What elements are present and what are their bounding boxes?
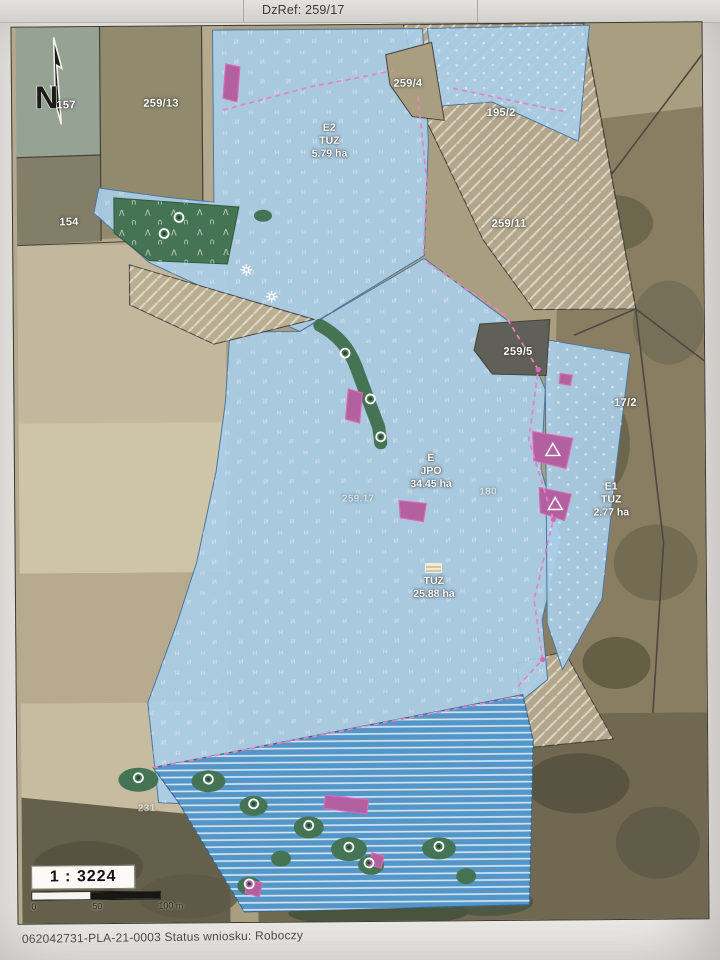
area-size: 5.79 ha <box>312 148 348 161</box>
map-canvas: н и Λ ∩ <box>10 21 709 924</box>
parcel-label-195-2: 195/2 <box>487 107 516 119</box>
header-divider <box>477 0 478 22</box>
parcel-label-259-5: 259/5 <box>503 346 532 358</box>
tuz-symbol-icon <box>425 563 442 573</box>
area-code: E1 <box>593 480 629 493</box>
scale-tick-0: 0 <box>31 902 36 912</box>
parcel-label-17-2: 17/2 <box>614 397 637 409</box>
header-divider <box>243 0 244 22</box>
area-size: 25.88 ha <box>413 588 455 601</box>
parcel-label-259-4: 259/4 <box>393 77 422 89</box>
parcel-label-154: 154 <box>59 216 78 228</box>
area-label-e2: E2 TUZ 5.79 ha <box>311 122 347 161</box>
scale-segment-black <box>90 892 160 900</box>
scale-bar-track <box>31 891 161 901</box>
area-code: E2 <box>311 122 347 135</box>
area-size: 34.45 ha <box>410 478 452 491</box>
scale-segment-white <box>32 892 90 899</box>
page-header-strip <box>0 0 720 23</box>
map-graphic: н и Λ ∩ <box>11 22 709 924</box>
area-code: E <box>410 452 452 465</box>
parcel-label-231: 231 <box>138 803 156 814</box>
area-crop: JPO <box>410 465 452 478</box>
scale-bar: 1 : 3224 0 50 100 m <box>31 864 191 911</box>
area-label-e1: E1 TUZ 2.77 ha <box>593 480 629 519</box>
area-size: 2.77 ha <box>593 506 629 519</box>
parcel-label-259-11: 259/11 <box>492 218 527 230</box>
scale-ticks: 0 50 100 m <box>31 900 183 911</box>
parcel-label-180: 180 <box>479 486 497 497</box>
area-label-tuz: TUZ 25.88 ha <box>413 562 455 601</box>
parcel-label-157: 157 <box>56 99 75 111</box>
north-letter: N <box>35 79 58 115</box>
scanned-map-page: DzRef: 259/17 н и Λ ∩ <box>0 0 720 960</box>
scale-tick-100: 100 m <box>158 900 183 910</box>
area-crop: TUZ <box>593 493 629 506</box>
area-crop: TUZ <box>413 575 455 588</box>
dzref-label: DzRef: 259/17 <box>262 3 345 17</box>
document-id-status: 062042731-PLA-21-0003 Status wniosku: Ro… <box>22 928 303 946</box>
parcel-label-259-13: 259/13 <box>143 97 179 109</box>
area-crop: TUZ <box>312 135 348 148</box>
map-photo: н и Λ ∩ <box>10 21 709 924</box>
scale-tick-50: 50 <box>92 901 102 911</box>
parcel-label-259-17: 259.17 <box>342 493 374 504</box>
scale-ratio: 1 : 3224 <box>31 865 135 890</box>
area-label-jpo: E JPO 34.45 ha <box>410 452 452 491</box>
north-arrow-icon: N <box>28 34 81 132</box>
